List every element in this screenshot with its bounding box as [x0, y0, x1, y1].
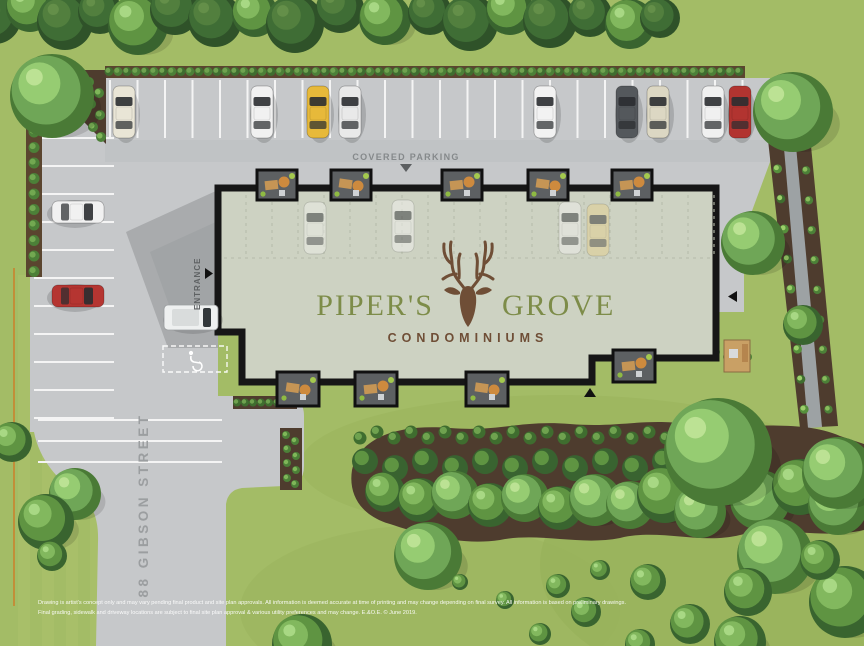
shrub	[412, 448, 438, 474]
shrub	[402, 67, 411, 76]
shrub	[231, 67, 240, 76]
patio-table	[378, 381, 389, 392]
tree	[670, 604, 710, 644]
site-plan-canvas: COVERED PARKING ENTRANCE 88 GIBSON STREE…	[0, 0, 864, 646]
shrub	[555, 67, 564, 76]
shrub	[708, 67, 717, 76]
shrub	[592, 432, 605, 445]
shrub	[643, 426, 656, 439]
shrub	[735, 67, 744, 76]
patio-plant	[617, 372, 622, 377]
shrub	[573, 67, 582, 76]
shrub	[582, 67, 591, 76]
shrub	[805, 196, 813, 204]
shrub	[492, 67, 501, 76]
patio-table	[353, 181, 364, 192]
shrub	[159, 67, 168, 76]
logo-name-right: GROVE	[502, 289, 615, 322]
shrub	[352, 448, 378, 474]
patio-furniture	[489, 394, 495, 400]
tree	[37, 541, 67, 571]
shrub	[283, 459, 291, 467]
shrub	[405, 426, 418, 439]
shrub	[472, 448, 498, 474]
patio-furniture	[475, 382, 489, 393]
shrub	[699, 67, 708, 76]
patio-plant	[499, 377, 505, 383]
shrub	[371, 426, 384, 439]
shrub	[29, 173, 40, 184]
shrub	[285, 67, 294, 76]
covered-car	[304, 202, 326, 254]
patio-plant	[646, 354, 652, 360]
shrub	[29, 266, 40, 277]
shrub	[592, 448, 618, 474]
patio-plant	[388, 377, 394, 383]
patio-plant	[310, 377, 316, 383]
shrub	[29, 189, 40, 200]
covered-car	[587, 204, 609, 256]
patio-plant	[445, 191, 450, 196]
tree	[724, 568, 772, 616]
shrub	[114, 67, 123, 76]
shrub	[821, 375, 829, 383]
shrub	[141, 67, 150, 76]
patio-furniture	[378, 394, 384, 400]
tree	[590, 560, 610, 580]
patio-furniture	[620, 180, 634, 190]
covered-car	[392, 200, 414, 252]
shrub	[291, 437, 299, 445]
shrub	[600, 67, 609, 76]
rear-deck	[724, 340, 750, 372]
shrub	[473, 426, 486, 439]
shrub	[222, 67, 231, 76]
patio-furniture	[536, 178, 550, 189]
shrub	[411, 67, 420, 76]
shrub	[312, 67, 321, 76]
shrub	[793, 345, 802, 354]
shrub	[267, 67, 276, 76]
shrub	[330, 67, 339, 76]
shrub	[672, 67, 681, 76]
patio-plant	[644, 173, 650, 179]
shrub	[348, 67, 357, 76]
shrub	[150, 67, 159, 76]
shrub	[465, 67, 474, 76]
patio-furniture	[634, 190, 640, 196]
shrub	[29, 204, 40, 215]
shrub	[810, 256, 818, 264]
shrub	[618, 67, 627, 76]
shrub	[663, 67, 672, 76]
shrub	[429, 67, 438, 76]
shrub	[591, 67, 600, 76]
shrub	[501, 67, 510, 76]
shrub	[357, 67, 366, 76]
patio-plant	[470, 395, 475, 400]
shrub	[800, 405, 809, 414]
shrub	[204, 67, 213, 76]
shrub	[283, 445, 291, 453]
tree	[546, 574, 570, 598]
shrub	[233, 399, 241, 407]
shrub	[388, 432, 401, 445]
shrub	[546, 67, 555, 76]
unit-patio	[277, 372, 319, 406]
shrub	[609, 426, 622, 439]
shrub	[96, 132, 106, 142]
shrub	[681, 67, 690, 76]
patio-plant	[531, 191, 536, 196]
shrub	[564, 67, 573, 76]
unit-patio	[466, 372, 508, 406]
patio-table	[634, 177, 645, 188]
patio-table	[279, 177, 290, 188]
shrub	[339, 67, 348, 76]
shrub	[626, 432, 639, 445]
patio-table	[300, 385, 311, 396]
shrub	[283, 474, 291, 482]
patio-table	[636, 358, 647, 369]
patio-furniture	[464, 190, 470, 196]
shrub	[776, 194, 785, 203]
tree	[783, 305, 823, 345]
shrub	[213, 67, 222, 76]
shrub	[177, 67, 186, 76]
shrub	[796, 375, 805, 384]
shrub	[819, 345, 827, 353]
shrub	[575, 426, 588, 439]
patio-table	[489, 385, 500, 396]
shrub	[447, 67, 456, 76]
entrance-label: ENTRANCE	[193, 258, 202, 310]
shrub	[813, 286, 821, 294]
shrub	[384, 67, 393, 76]
shrub	[123, 67, 132, 76]
shrub	[29, 220, 40, 231]
shrub	[132, 67, 141, 76]
shrub	[532, 448, 558, 474]
patio-table	[550, 181, 561, 192]
patio-plant	[359, 395, 364, 400]
shrub	[627, 67, 636, 76]
shrub	[168, 67, 177, 76]
shrub	[773, 164, 782, 173]
shrub	[439, 426, 452, 439]
shrub	[726, 67, 735, 76]
shrub	[422, 432, 435, 445]
shrub	[438, 67, 447, 76]
shrub	[241, 399, 249, 407]
shrub	[456, 432, 469, 445]
tree	[800, 540, 840, 580]
unit-patio	[355, 372, 397, 406]
patio-furniture	[265, 180, 279, 190]
shrub	[541, 426, 554, 439]
shrub	[354, 432, 367, 445]
shrub	[645, 67, 654, 76]
shrub	[786, 285, 795, 294]
patio-furniture	[279, 190, 285, 196]
shrub	[375, 67, 384, 76]
tree	[452, 574, 468, 590]
patio-furniture	[364, 384, 378, 394]
unit-patio	[442, 170, 482, 200]
shrub	[29, 142, 40, 153]
patio-furniture	[550, 190, 556, 196]
shrub	[808, 226, 816, 234]
shrub	[265, 399, 273, 407]
shrub	[654, 67, 663, 76]
shrub	[294, 67, 303, 76]
shrub	[690, 67, 699, 76]
tree	[529, 623, 551, 645]
shrub	[456, 67, 465, 76]
shrub	[519, 67, 528, 76]
shrub	[510, 67, 519, 76]
shrub	[291, 480, 299, 488]
shrub	[474, 67, 483, 76]
shrub	[420, 67, 429, 76]
covered-parking-label: COVERED PARKING	[352, 152, 459, 162]
patio-plant	[615, 191, 620, 196]
disclaimer-line-1: Drawing is artist's concept only and may…	[38, 600, 626, 606]
shrub	[609, 67, 618, 76]
unit-patio	[257, 170, 297, 200]
unit-patio	[331, 170, 371, 200]
shrub	[802, 166, 810, 174]
shrub	[303, 67, 312, 76]
covered-car	[559, 202, 581, 254]
shrub	[528, 67, 537, 76]
unit-patio	[528, 170, 568, 200]
shrub	[490, 432, 503, 445]
shrub	[186, 67, 195, 76]
patio-furniture	[300, 394, 306, 400]
logo-subtitle: CONDOMINIUMS	[388, 331, 549, 345]
shrub	[29, 158, 40, 169]
shrub	[292, 466, 300, 474]
shrub	[249, 67, 258, 76]
shrub	[276, 67, 285, 76]
shrub	[29, 251, 40, 262]
shrub	[524, 432, 537, 445]
patio-plant	[334, 191, 339, 196]
shrub	[537, 67, 546, 76]
unit-patio	[612, 170, 652, 200]
unit-patio	[613, 350, 655, 382]
shrub	[558, 432, 571, 445]
shrub	[292, 452, 300, 460]
shrub	[105, 67, 114, 76]
patio-furniture	[286, 382, 300, 393]
shrub	[258, 67, 267, 76]
patio-plant	[289, 173, 295, 179]
patio-plant	[260, 191, 265, 196]
patio-furniture	[622, 361, 636, 371]
shrub	[257, 399, 265, 407]
street-label: 88 GIBSON STREET	[136, 412, 151, 597]
disclaimer-line-2: Final grading, sidewalk and driveway loc…	[38, 609, 417, 616]
shrub	[483, 67, 492, 76]
patio-furniture	[353, 190, 359, 196]
shrub	[717, 67, 726, 76]
patio-table	[464, 177, 475, 188]
patio-furniture	[450, 180, 464, 190]
shrub	[507, 426, 520, 439]
patio-furniture	[339, 178, 353, 189]
shrub	[393, 67, 402, 76]
patio-plant	[363, 173, 369, 179]
shrub	[240, 67, 249, 76]
shrub	[282, 431, 290, 439]
patio-plant	[474, 173, 480, 179]
shrub	[366, 67, 375, 76]
patio-furniture	[636, 371, 642, 377]
logo-name-left: PIPER'S	[316, 289, 434, 322]
tree	[630, 564, 666, 600]
patio-plant	[281, 395, 286, 400]
shrub	[249, 399, 257, 407]
shrub	[824, 405, 832, 413]
shrub	[321, 67, 330, 76]
shrub	[29, 235, 40, 246]
shrub	[636, 67, 645, 76]
patio-plant	[560, 173, 566, 179]
site-plan: COVERED PARKING ENTRANCE 88 GIBSON STREE…	[0, 0, 864, 646]
shrub	[195, 67, 204, 76]
